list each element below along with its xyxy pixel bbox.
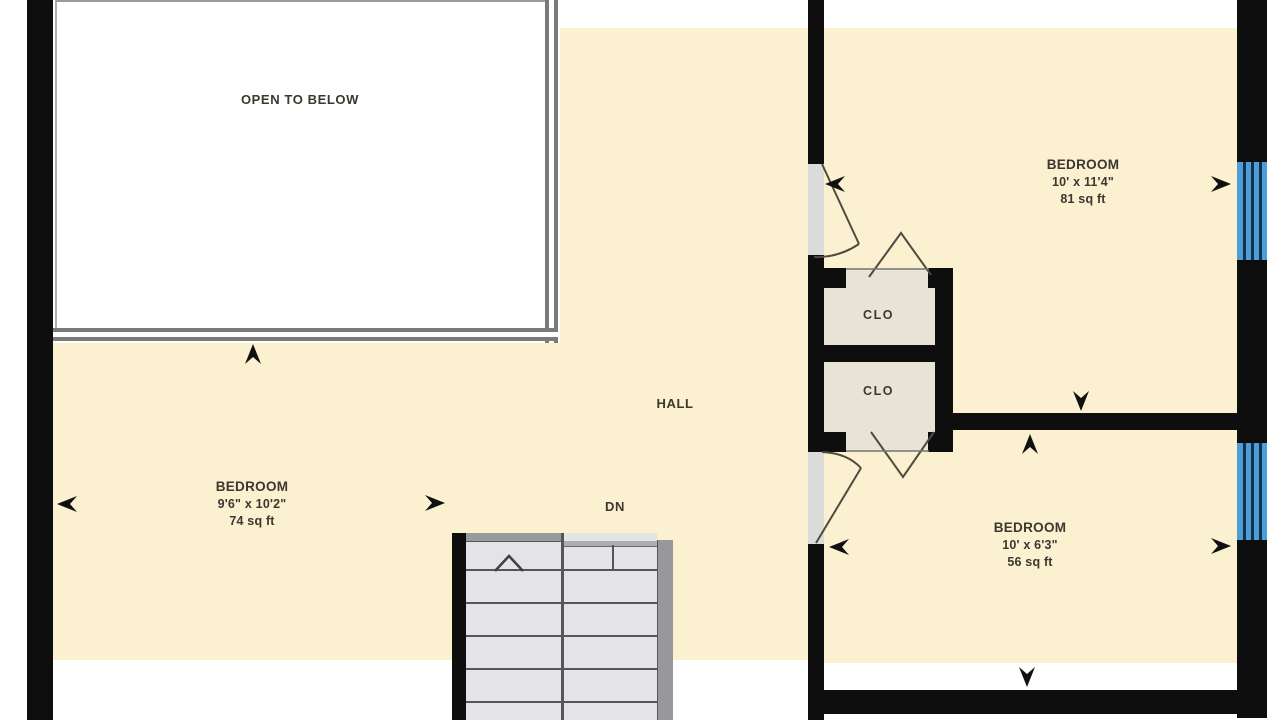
bedroom-top-right-label: BEDROOM 10' x 11'4" 81 sq ft [983,156,1183,209]
closet-wall-right [935,268,953,452]
door-opening-bedroom-top-right [808,164,824,255]
wall-bedroom-divider-horizontal [953,413,1267,430]
bedroom-left-area: 74 sq ft [152,513,352,531]
window-bedroom-top-right [1237,162,1267,260]
closet-jamb-bottom-left [822,432,846,452]
bedroom-left-label: BEDROOM 9'6" x 10'2" 74 sq ft [152,478,352,531]
stair-stringer-right [657,540,673,720]
closet-wall-middle [822,345,935,362]
bedroom-bottom-right-label: BEDROOM 10' x 6'3" 56 sq ft [930,519,1130,572]
bedroom-left-dimensions: 9'6" x 10'2" [152,496,352,514]
door-opening-bedroom-bottom-right [808,452,824,544]
bedroom-top-right-name: BEDROOM [983,156,1183,174]
closet-2-label: CLO [822,384,935,398]
open-to-below-label: OPEN TO BELOW [55,92,545,107]
railing-bottom [53,328,558,341]
wall-exterior-right-top [1237,0,1267,162]
floor-hall-upper [560,28,808,343]
stairwell-wall-left [452,533,466,720]
bedroom-top-right-area: 81 sq ft [983,191,1183,209]
closet-jamb-top-left [822,268,846,288]
open-to-below-room [55,0,545,330]
closet-1-label: CLO [822,308,935,322]
wall-exterior-left [27,0,53,720]
bedroom-bottom-right-area: 56 sq ft [930,554,1130,572]
staircase [466,533,657,720]
stair-top-edge-left-run [466,533,563,542]
wall-center-top [808,0,824,164]
bedroom-bottom-right-dimensions: 10' x 6'3" [930,537,1130,555]
wall-exterior-bottom [808,690,1267,714]
stairs-down-label: DN [585,499,645,514]
floor-plan: OPEN TO BELOW HALL DN CLO CLO BEDROOM 9'… [0,0,1280,720]
wall-exterior-right-middle [1237,260,1267,443]
railing-right [545,0,558,343]
bedroom-left-name: BEDROOM [152,478,352,496]
bedroom-top-right-dimensions: 10' x 11'4" [983,174,1183,192]
closet-jamb-bottom-right [928,432,953,452]
arrow-down-bottom-wall [1019,667,1035,687]
stair-top-edge-right-run [563,541,657,547]
hall-label: HALL [625,396,725,411]
bedroom-bottom-right-name: BEDROOM [930,519,1130,537]
window-bedroom-bottom-right [1237,443,1267,540]
